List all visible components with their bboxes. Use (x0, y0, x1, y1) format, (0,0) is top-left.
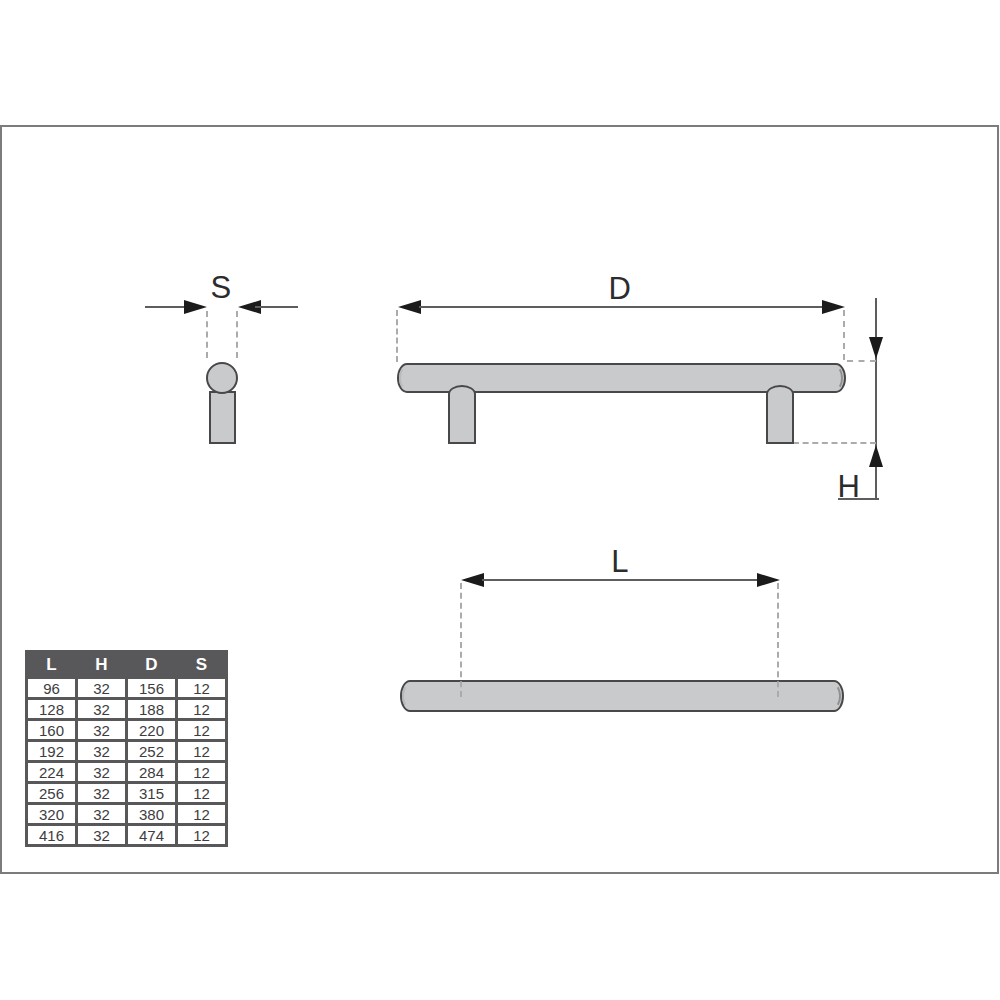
table-cell: 128 (28, 700, 75, 718)
col-header-l: L (28, 653, 75, 676)
dim-label-s: S (203, 271, 239, 305)
s-arrowhead-right-icon (184, 300, 207, 314)
table-cell: 32 (78, 742, 125, 760)
top-bar-endcap-left-icon (402, 684, 416, 708)
table-cell: 32 (78, 805, 125, 823)
table-cell: 12 (178, 805, 225, 823)
table-cell: 32 (78, 763, 125, 781)
table-cell: 12 (178, 721, 225, 739)
table-row: 128 32 188 12 (28, 700, 225, 718)
dimension-drawing-canvas: S D H L L H D S (0, 0, 1000, 1000)
s-extension-line-left (206, 311, 208, 358)
table-cell: 96 (28, 679, 75, 697)
spec-table-header-row: L H D S (28, 653, 225, 676)
table-cell: 252 (128, 742, 175, 760)
d-arrowhead-left-icon (398, 300, 421, 314)
d-arrowhead-right-icon (822, 300, 845, 314)
table-cell: 12 (178, 763, 225, 781)
table-cell: 32 (78, 679, 125, 697)
table-cell: 12 (178, 742, 225, 760)
l-extension-line-left (460, 583, 462, 697)
table-cell: 32 (78, 721, 125, 739)
dim-label-l: L (604, 545, 636, 579)
col-header-h: H (78, 653, 125, 676)
h-arrowhead-down-icon (869, 337, 883, 359)
table-row: 96 32 156 12 (28, 679, 225, 697)
l-dimension-line (482, 579, 759, 581)
table-cell: 320 (28, 805, 75, 823)
s-extension-line-right (236, 311, 238, 358)
table-cell: 12 (178, 826, 225, 844)
table-cell: 256 (28, 784, 75, 802)
table-cell: 220 (128, 721, 175, 739)
handle-bar-cross-section (206, 362, 238, 394)
table-cell: 32 (78, 784, 125, 802)
table-cell: 12 (178, 784, 225, 802)
handle-leg-left (448, 385, 476, 444)
table-cell: 192 (28, 742, 75, 760)
h-baseline (838, 498, 879, 500)
bar-endcap-right-icon (829, 366, 843, 390)
table-cell: 315 (128, 784, 175, 802)
table-row: 192 32 252 12 (28, 742, 225, 760)
col-header-s: S (178, 653, 225, 676)
table-cell: 12 (178, 679, 225, 697)
table-cell: 32 (78, 826, 125, 844)
handle-leg-right (766, 385, 794, 444)
d-dimension-line (419, 306, 824, 308)
table-cell: 12 (178, 700, 225, 718)
spec-table: L H D S 96 32 156 12 128 32 188 12 160 3… (25, 650, 228, 847)
table-cell: 160 (28, 721, 75, 739)
table-cell: 416 (28, 826, 75, 844)
l-arrowhead-left-icon (461, 573, 484, 587)
h-extension-line-bottom (793, 442, 876, 444)
h-extension-line-top (847, 360, 876, 362)
dim-label-d: D (601, 272, 639, 306)
table-cell: 380 (128, 805, 175, 823)
table-cell: 224 (28, 763, 75, 781)
table-row: 256 32 315 12 (28, 784, 225, 802)
table-cell: 188 (128, 700, 175, 718)
handle-post-side-view (209, 391, 236, 444)
s-dimension-line-right (255, 306, 298, 308)
table-row: 224 32 284 12 (28, 763, 225, 781)
d-extension-line-right (843, 310, 845, 360)
l-extension-line-right (777, 583, 779, 697)
h-dimension-line (875, 298, 877, 500)
table-cell: 474 (128, 826, 175, 844)
h-arrowhead-up-icon (869, 445, 883, 467)
table-row: 416 32 474 12 (28, 826, 225, 844)
bar-endcap-left-icon (399, 366, 413, 390)
table-row: 320 32 380 12 (28, 805, 225, 823)
table-cell: 156 (128, 679, 175, 697)
col-header-d: D (128, 653, 175, 676)
table-cell: 32 (78, 700, 125, 718)
table-cell: 284 (128, 763, 175, 781)
d-extension-line-left (396, 310, 398, 362)
top-bar-endcap-right-icon (827, 684, 841, 708)
table-row: 160 32 220 12 (28, 721, 225, 739)
